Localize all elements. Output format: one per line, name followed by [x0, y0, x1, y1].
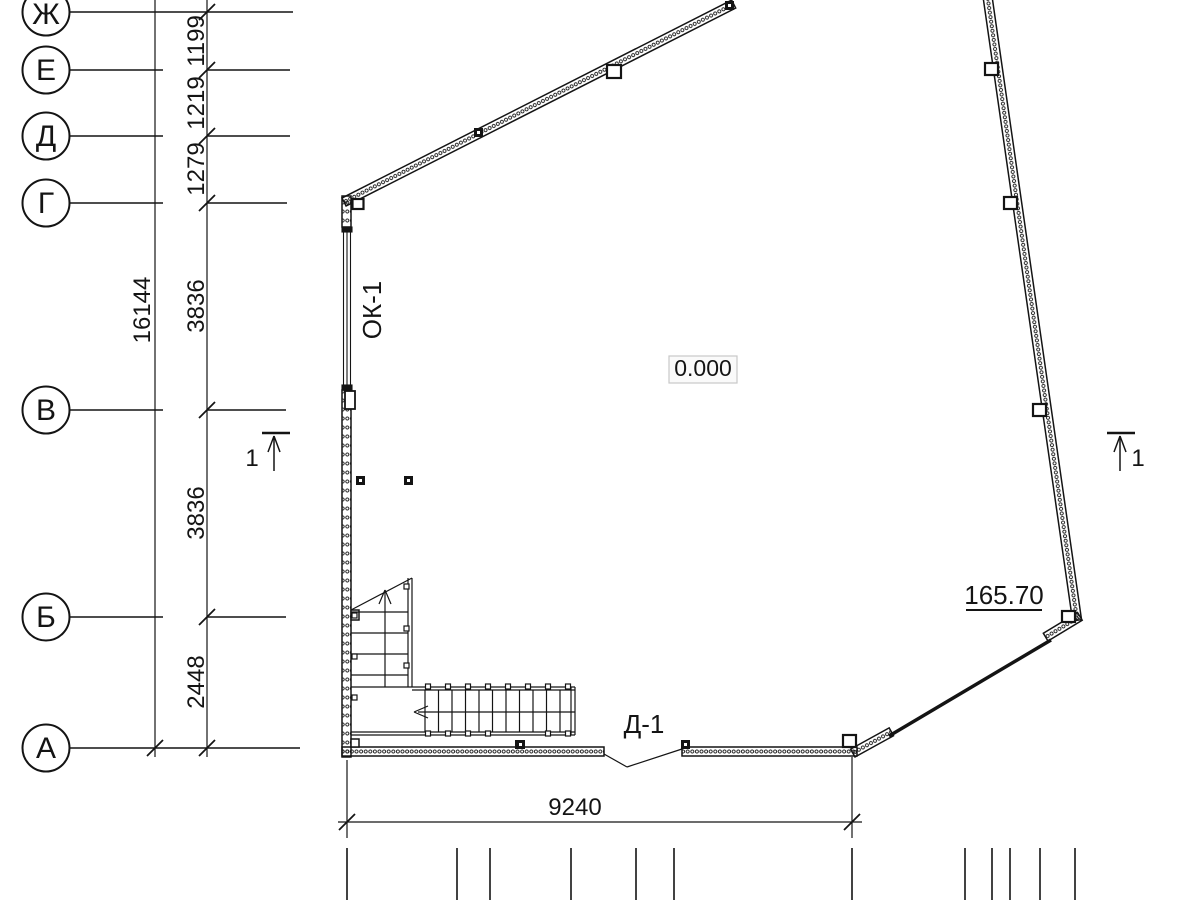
marker-stair-wall-2 — [351, 739, 359, 747]
wall-bottom-east — [682, 747, 857, 756]
bottom-extension-stubs — [347, 848, 1075, 900]
section-mark-left — [262, 433, 290, 471]
marker-right-wall-2 — [1004, 197, 1017, 209]
marker-right-wall-3 — [1033, 404, 1046, 416]
open-square-markers — [345, 63, 1075, 747]
marker-right-wall-1 — [985, 63, 998, 75]
floor-plan-drawing: Ж Е Д Г В Б А 16144 1199 1219 1279 383 — [0, 0, 1200, 900]
axis-label-d: Д — [36, 120, 56, 153]
marker-top-wall — [607, 65, 621, 78]
wall-top-sloped — [342, 0, 736, 206]
axis-label-b: Б — [36, 601, 56, 634]
axis-label-e: Е — [36, 54, 56, 87]
marker-bottom-wall-corner — [843, 735, 856, 747]
dim-1219: 1219 — [183, 76, 210, 129]
door-leaf-1 — [604, 754, 627, 767]
wall-bottom-west — [342, 747, 604, 756]
axis-label-zh: Ж — [32, 0, 60, 31]
wall-plain-diagonal — [889, 640, 1051, 736]
axis-label-v: В — [36, 394, 56, 427]
door-d1 — [604, 749, 682, 767]
elevation-value: 165.70 — [964, 580, 1044, 610]
dim-1279: 1279 — [183, 142, 210, 195]
marker-corner-top-left — [353, 199, 364, 209]
wall-right — [983, 0, 1081, 621]
axis-label-g: Г — [38, 187, 54, 220]
dim-overall-16144: 16144 — [129, 277, 156, 344]
window-ok1 — [342, 227, 352, 390]
section-label-right: 1 — [1131, 445, 1144, 472]
elevation-mark: 165.70 — [964, 580, 1044, 610]
dim-2448: 2448 — [183, 655, 210, 708]
dim-3836-lower: 3836 — [183, 486, 210, 539]
marker-window-sill — [345, 391, 355, 409]
stairs — [351, 578, 575, 735]
window-bottom-cap — [342, 385, 352, 390]
bottom-dimension-value: 9240 — [548, 794, 601, 821]
axis-bubbles — [23, 0, 70, 772]
left-dimension-texts: 16144 1199 1219 1279 3836 3836 2448 — [129, 15, 210, 709]
window-top-cap — [342, 227, 352, 232]
axis-label-a: А — [36, 732, 56, 765]
window-label: ОК-1 — [357, 281, 387, 340]
stair-break-line — [351, 578, 412, 610]
section-label-left: 1 — [245, 445, 258, 472]
level-mark-value: 0.000 — [674, 355, 732, 381]
marker-right-wall-4 — [1062, 611, 1075, 622]
dim-1199: 1199 — [183, 15, 210, 67]
dim-3836-upper: 3836 — [183, 279, 210, 332]
door-label: Д-1 — [624, 709, 665, 739]
floor-plan-canvas: Ж Е Д Г В Б А 16144 1199 1219 1279 383 — [0, 0, 1200, 900]
door-leaf-2 — [627, 749, 682, 767]
level-mark: 0.000 — [669, 355, 737, 383]
wall-left-below-window — [342, 390, 351, 757]
